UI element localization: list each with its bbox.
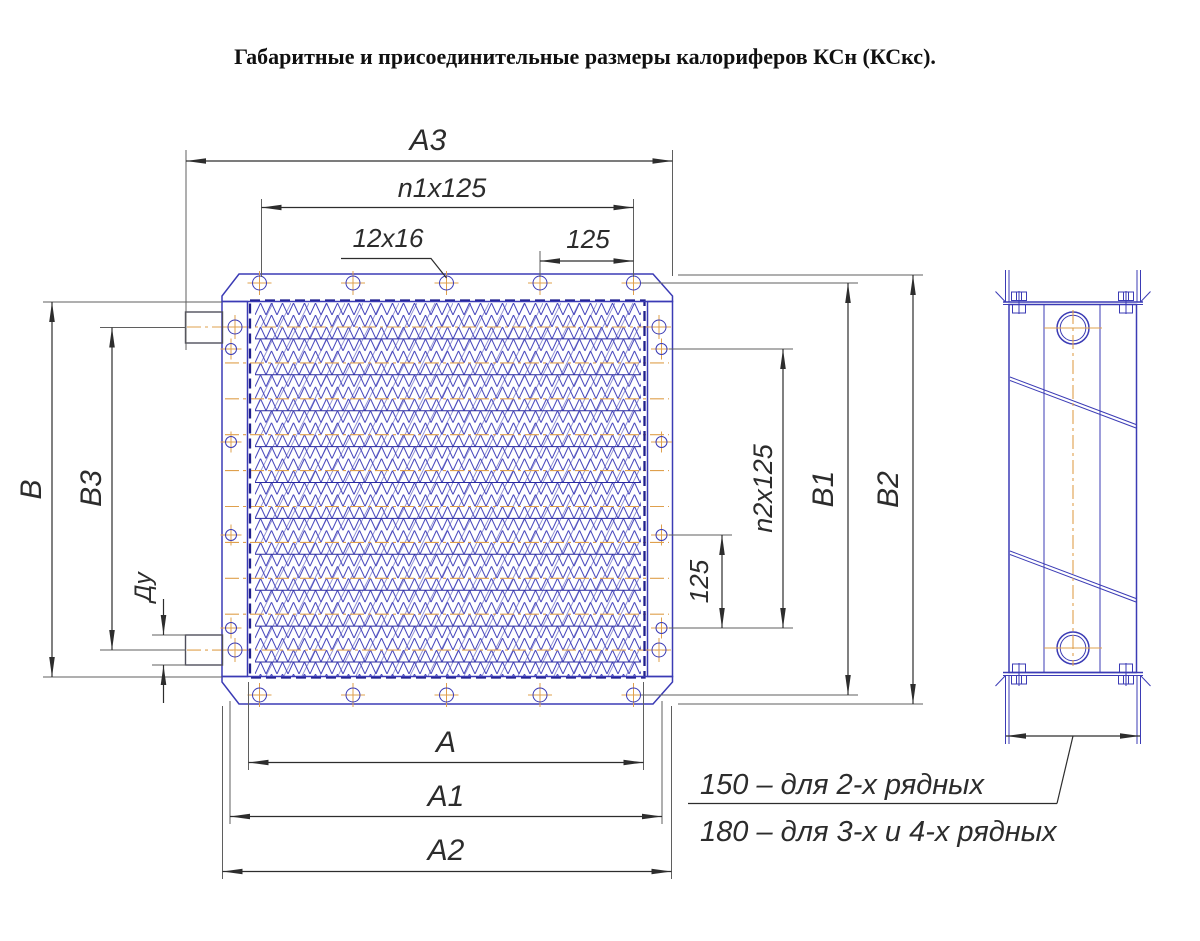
- dim-b: B: [15, 302, 222, 677]
- right-side-plate: [647, 302, 673, 677]
- fin-core: [187, 301, 669, 678]
- dim-du: Ду: [130, 570, 186, 703]
- dim-a1-label: A1: [426, 780, 465, 813]
- dim-a-label: A: [434, 726, 456, 759]
- drawing-sheet: Габаритные и присоединительные размеры к…: [0, 0, 1200, 941]
- note-depth-34row: 180 – для 3-х и 4-х рядных: [700, 816, 1058, 848]
- fin-diagonals: [255, 303, 641, 676]
- dim-125-top: 125: [540, 224, 634, 277]
- dim-125-right-label: 125: [684, 559, 714, 603]
- drawing-canvas: Габаритные и присоединительные размеры к…: [0, 0, 1200, 941]
- dim-n2x125-label: n2x125: [748, 443, 778, 533]
- dim-125-top-label: 125: [566, 224, 610, 254]
- dim-b2-label: B2: [872, 471, 905, 508]
- callout-12x16-label: 12x16: [353, 223, 424, 253]
- bottom-flange: [222, 677, 673, 708]
- right-plate-holes: [647, 315, 672, 662]
- dim-b3-label: B3: [75, 470, 108, 507]
- dim-a3-label: A3: [408, 124, 447, 157]
- side-centerlines: [1044, 310, 1102, 666]
- top-flange: [222, 271, 673, 302]
- dim-125-right: 125: [669, 535, 732, 628]
- dim-depth: 150 – для 2-х рядных 180 – для 3-х и 4-х…: [688, 736, 1140, 848]
- dim-b2: B2: [678, 275, 923, 704]
- dim-n1x125-label: n1x125: [398, 173, 488, 203]
- dim-b-label: B: [15, 479, 48, 499]
- drawing-title: Габаритные и присоединительные размеры к…: [234, 44, 936, 69]
- left-side-plate: [221, 302, 248, 677]
- dim-b1-label: B1: [807, 471, 840, 508]
- dim-du-label: Ду: [130, 570, 157, 604]
- dim-a2-label: A2: [426, 834, 465, 867]
- front-view: [186, 271, 673, 707]
- left-plate-holes: [221, 315, 248, 662]
- side-view: [996, 270, 1151, 744]
- callout-12x16: 12x16: [341, 223, 447, 278]
- note-depth-2row: 150 – для 2-х рядных: [700, 769, 986, 801]
